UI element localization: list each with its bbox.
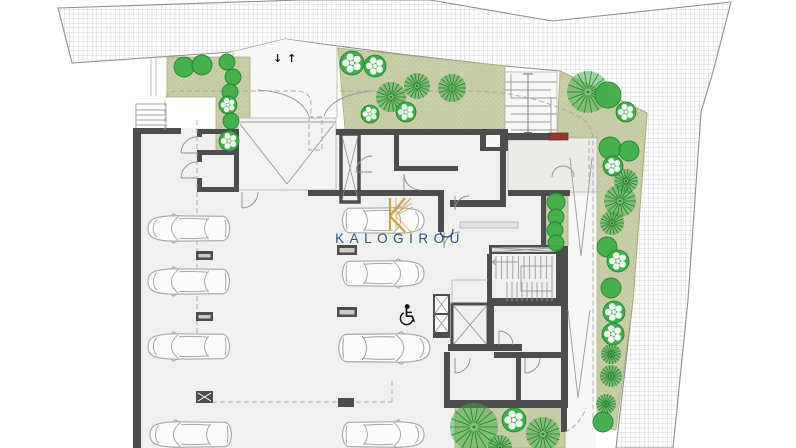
scallop-tree: [340, 51, 364, 75]
scallop-tree: [364, 55, 386, 77]
scallop-tree: [219, 96, 237, 114]
burst-tree: [438, 74, 466, 102]
parked-car: [148, 332, 230, 362]
solid-tree: [174, 57, 194, 77]
solid-tree: [192, 55, 212, 75]
column-pillar: [338, 398, 354, 407]
scallop-tree: [361, 105, 379, 123]
solid-tree: [219, 54, 235, 70]
burst-tree: [600, 365, 622, 387]
column-pillar: [196, 391, 213, 403]
scallop-tree: [616, 102, 636, 122]
parked-car: [339, 332, 430, 365]
up-arrow-icon: ↑: [287, 52, 296, 65]
scallop-tree: [396, 102, 416, 122]
terrace: [508, 138, 597, 192]
watermark-brand-text: KALOGIROU: [335, 231, 465, 246]
scallop-tree: [607, 250, 629, 272]
column-pillar: [337, 245, 357, 255]
column-pillar: [196, 251, 213, 260]
burst-tree: [600, 211, 624, 235]
burst-tree: [596, 394, 616, 414]
scallop-tree: [219, 131, 239, 151]
parked-car: [342, 420, 424, 448]
solid-tree: [595, 82, 621, 108]
column-pillar: [196, 312, 213, 321]
entrance-mat: [549, 133, 568, 140]
burst-tree: [404, 73, 430, 99]
parked-car: [150, 420, 232, 448]
solid-tree: [601, 278, 621, 298]
scallop-tree: [502, 408, 526, 432]
parked-car: [342, 259, 424, 289]
parked-car: [148, 214, 230, 244]
scallop-tree: [603, 301, 625, 323]
scallop-tree: [602, 323, 624, 345]
solid-tree: [223, 113, 239, 129]
solid-tree: [619, 141, 639, 161]
floor-plan-page: ↓ ↑ KALOGIROU: [0, 0, 796, 448]
exterior-steps: [136, 58, 166, 130]
burst-tree: [601, 344, 621, 364]
floor-plan-canvas: ↓ ↑ KALOGIROU: [0, 0, 796, 448]
solid-tree: [599, 137, 621, 159]
solid-tree: [225, 69, 241, 85]
column-pillar: [337, 307, 357, 317]
parked-car: [148, 267, 230, 297]
solid-tree: [548, 235, 564, 251]
side-ramp-strip: [565, 196, 596, 430]
down-arrow-icon: ↓: [273, 52, 282, 65]
solid-tree: [593, 412, 613, 432]
solid-tree: [547, 193, 565, 211]
